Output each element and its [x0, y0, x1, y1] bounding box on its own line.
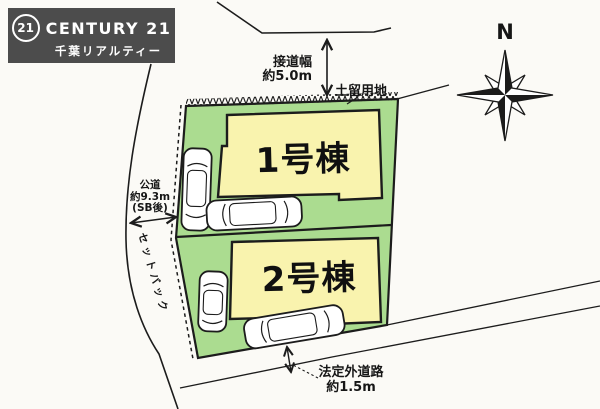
brand-subtitle: 千葉リアルティー	[8, 43, 175, 59]
frontage-label: 接道幅 約5.0m	[228, 56, 312, 84]
public-road-dimension-arrow	[131, 217, 176, 223]
boundary-line-northeast	[397, 85, 449, 99]
frontage-label-line2: 約5.0m	[228, 70, 312, 84]
brand-name: CENTURY 21	[46, 19, 172, 38]
informal-road-label-line2: 約1.5m	[299, 380, 403, 395]
informal-road-label-line1: 法定外道路	[299, 365, 403, 380]
site-plan: 21 CENTURY 21 千葉リアルティー N 1号棟 2号棟 接道幅 約5.…	[0, 0, 600, 409]
informal-road-label: 法定外道路 約1.5m	[299, 365, 403, 395]
compass-north-label: N	[487, 20, 523, 44]
frontage-label-line1: 接道幅	[228, 56, 312, 70]
century21-logo: 21 CENTURY 21 千葉リアルティー	[8, 8, 175, 63]
car-lot1-front	[206, 196, 302, 231]
road-edge-southeast-upper	[387, 281, 600, 325]
road-edge-west	[126, 64, 178, 409]
retaining-land-label: 土留用地	[335, 80, 387, 99]
public-road-label-line3: (SB後)	[118, 203, 182, 215]
compass-rose-icon	[457, 50, 553, 141]
road-edge-north	[217, 2, 391, 33]
car-lot2-side	[198, 271, 228, 332]
building-2-label: 2号棟	[233, 249, 384, 302]
century21-seal-icon: 21	[12, 14, 40, 42]
logo-seal-number: 21	[17, 21, 34, 35]
informal-road-dimension-arrow	[287, 347, 291, 372]
public-road-label-line1: 公道	[118, 180, 182, 192]
building-1-label: 1号棟	[227, 130, 378, 183]
public-road-label: 公道 約9.3m (SB後)	[118, 180, 182, 215]
